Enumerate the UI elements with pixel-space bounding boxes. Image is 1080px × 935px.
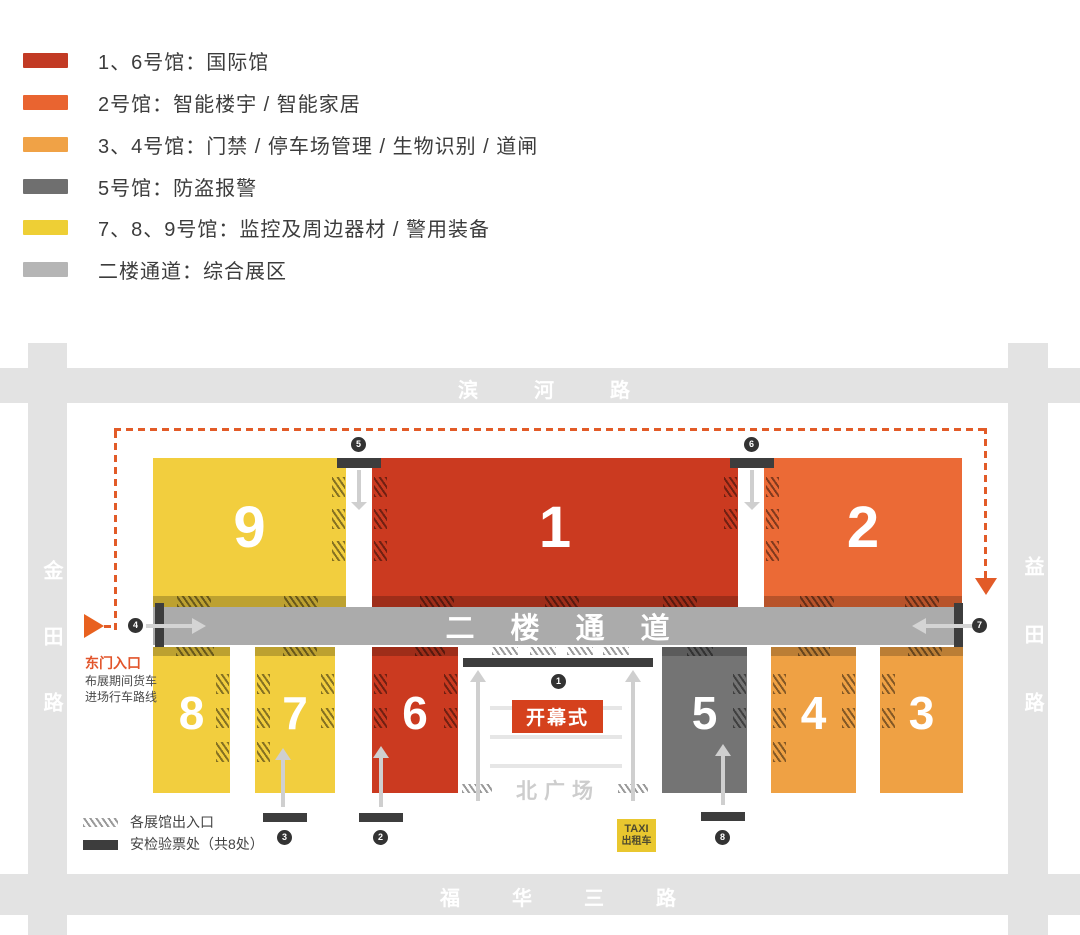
hall-number: 2 — [847, 494, 879, 561]
hall-9: 9 — [153, 458, 346, 596]
entrance-hatch — [374, 674, 387, 694]
hall-1: 1 — [372, 458, 738, 596]
entrance-hatch — [766, 477, 779, 497]
legend-row: 1、6号馆：国际馆 — [23, 49, 269, 71]
east-gate-arrow-icon — [84, 614, 104, 638]
legend-label: 2号馆：智能楼宇 / 智能家居 — [98, 88, 361, 117]
entrance-hatch — [257, 674, 270, 694]
maplegend-security-swatch — [83, 840, 118, 850]
checkpoint-badge-7: 7 — [972, 618, 987, 633]
entrance-hatch — [374, 509, 387, 529]
entrance-hatch — [492, 647, 518, 655]
maplegend-security-label: 安检验票处（共8处） — [130, 834, 264, 854]
hall-number: 3 — [909, 686, 935, 740]
entrance-hatch — [798, 647, 830, 656]
entrance-hatch — [530, 647, 556, 655]
hall-number: 4 — [801, 686, 827, 740]
entrance-hatch — [374, 708, 387, 728]
plaza-step-line — [490, 764, 622, 768]
legend-row: 2号馆：智能楼宇 / 智能家居 — [23, 91, 361, 113]
entrance-hatch — [724, 509, 737, 529]
entrance-hatch — [257, 708, 270, 728]
east-gate-desc-line2: 进场行车路线 — [85, 688, 157, 705]
legend-row: 5号馆：防盗报警 — [23, 175, 257, 197]
legend-row: 3、4号馆：门禁 / 停车场管理 / 生物识别 / 道闸 — [23, 133, 538, 155]
entrance-hatch — [603, 647, 629, 655]
security-check-bar — [730, 458, 774, 468]
entrance-hatch — [766, 509, 779, 529]
road-label-binhe: 滨河路 — [458, 374, 686, 403]
entrance-hatch — [842, 708, 855, 728]
security-check-bar — [337, 458, 381, 468]
truck-route-dashed-right — [984, 428, 987, 578]
entrance-hatch — [444, 674, 457, 694]
security-check-bar — [701, 812, 745, 821]
entrance-hatch — [176, 647, 214, 656]
legend-label: 二楼通道：综合展区 — [98, 255, 287, 284]
taxi-stand-box: TAXI 出租车 — [617, 819, 656, 852]
corridor-label: 二楼通道 — [409, 605, 705, 647]
entrance-hatch — [800, 596, 834, 607]
opening-ceremony-box: 开幕式 — [512, 700, 603, 733]
checkpoint-badge-2: 2 — [373, 830, 388, 845]
hall-number: 5 — [692, 686, 718, 740]
entrance-hatch — [663, 596, 697, 607]
entrance-hatch — [283, 647, 317, 656]
flow-arrow-up-icon — [470, 670, 486, 802]
entrance-hatch — [773, 708, 786, 728]
entrance-hatch — [216, 674, 229, 694]
expo-map-poster: 1、6号馆：国际馆 2号馆：智能楼宇 / 智能家居 3、4号馆：门禁 / 停车场… — [0, 0, 1080, 935]
entrance-hatch — [882, 674, 895, 694]
legend-row: 二楼通道：综合展区 — [23, 258, 287, 280]
road-label-yitian: 益田路 — [1018, 556, 1047, 760]
security-check-bar — [263, 813, 307, 822]
entrance-hatch — [905, 596, 939, 607]
maplegend-entrance-label: 各展馆出入口 — [130, 812, 214, 832]
entrance-hatch — [177, 596, 211, 607]
hall-number: 6 — [402, 686, 428, 740]
checkpoint-badge-6: 6 — [744, 437, 759, 452]
truck-route-dashed-top — [114, 428, 986, 431]
flow-arrow-up-icon — [715, 744, 731, 806]
entrance-hatch — [374, 541, 387, 561]
east-gate-desc-line1: 布展期间货车 — [85, 672, 157, 689]
entrance-hatch — [733, 674, 746, 694]
truck-route-dashed-left — [114, 428, 117, 630]
entrance-hatch — [842, 674, 855, 694]
entrance-hatch — [773, 742, 786, 762]
entrance-hatch — [257, 742, 270, 762]
checkpoint-badge-4: 4 — [128, 618, 143, 633]
entrance-hatch — [332, 477, 345, 497]
checkpoint-badge-1: 1 — [551, 674, 566, 689]
entrance-hatch — [374, 477, 387, 497]
security-check-bar — [463, 658, 653, 667]
opening-ceremony-label: 开幕式 — [526, 703, 589, 730]
route-arrowhead-down-icon — [975, 578, 997, 595]
hall-number: 8 — [179, 686, 205, 740]
flow-arrow-down-icon — [744, 470, 760, 514]
legend-swatch — [23, 262, 68, 277]
entrance-hatch — [766, 541, 779, 561]
flow-arrow-left-icon — [912, 618, 972, 634]
entrance-hatch — [567, 647, 593, 655]
security-check-bar — [359, 813, 403, 822]
entrance-hatch — [321, 674, 334, 694]
hall-number: 7 — [282, 686, 308, 740]
legend-label: 5号馆：防盗报警 — [98, 172, 257, 201]
entrance-hatch — [733, 708, 746, 728]
entrance-hatch — [420, 596, 454, 607]
legend-label: 1、6号馆：国际馆 — [98, 46, 269, 75]
truck-route-dashed-stub — [104, 625, 116, 628]
hall-number: 9 — [233, 494, 265, 561]
second-floor-corridor: 二楼通道 — [153, 607, 962, 645]
legend-label: 7、8、9号馆：监控及周边器材 / 警用装备 — [98, 213, 490, 242]
entrance-hatch — [216, 742, 229, 762]
flow-arrow-down-icon — [351, 470, 367, 514]
entrance-hatch — [687, 647, 713, 656]
entrance-hatch — [216, 708, 229, 728]
road-label-jintian: 金田路 — [37, 560, 66, 758]
entrance-hatch — [332, 509, 345, 529]
legend-label: 3、4号馆：门禁 / 停车场管理 / 生物识别 / 道闸 — [98, 130, 538, 159]
checkpoint-badge-5: 5 — [351, 437, 366, 452]
legend-swatch — [23, 95, 68, 110]
flow-arrow-up-icon — [625, 670, 641, 802]
entrance-hatch — [321, 708, 334, 728]
flow-arrow-up-icon — [275, 748, 291, 808]
entrance-hatch — [882, 708, 895, 728]
entrance-hatch — [908, 647, 942, 656]
legend-swatch — [23, 137, 68, 152]
entrance-hatch — [724, 477, 737, 497]
entrance-hatch — [332, 541, 345, 561]
legend-swatch — [23, 179, 68, 194]
taxi-label-en: TAXI — [624, 823, 648, 836]
entrance-hatch — [444, 708, 457, 728]
entrance-hatch — [284, 596, 318, 607]
entrance-hatch — [773, 674, 786, 694]
flow-arrow-up-icon — [373, 746, 389, 808]
entrance-hatch — [545, 596, 579, 607]
north-plaza-label: 北广场 — [516, 775, 600, 805]
maplegend-entrance-swatch — [83, 818, 118, 827]
legend-swatch — [23, 53, 68, 68]
hall-2: 2 — [764, 458, 962, 596]
checkpoint-badge-8: 8 — [715, 830, 730, 845]
road-label-fuhuasan: 福华三路 — [440, 882, 728, 911]
plaza-step-line — [490, 735, 622, 739]
flow-arrow-right-icon — [146, 618, 206, 634]
legend-swatch — [23, 220, 68, 235]
taxi-label-cn: 出租车 — [622, 836, 652, 848]
entrance-hatch — [415, 647, 445, 656]
legend-row: 7、8、9号馆：监控及周边器材 / 警用装备 — [23, 216, 490, 238]
east-gate-label: 东门入口 — [85, 653, 141, 673]
hall-number: 1 — [539, 494, 571, 561]
checkpoint-badge-3: 3 — [277, 830, 292, 845]
